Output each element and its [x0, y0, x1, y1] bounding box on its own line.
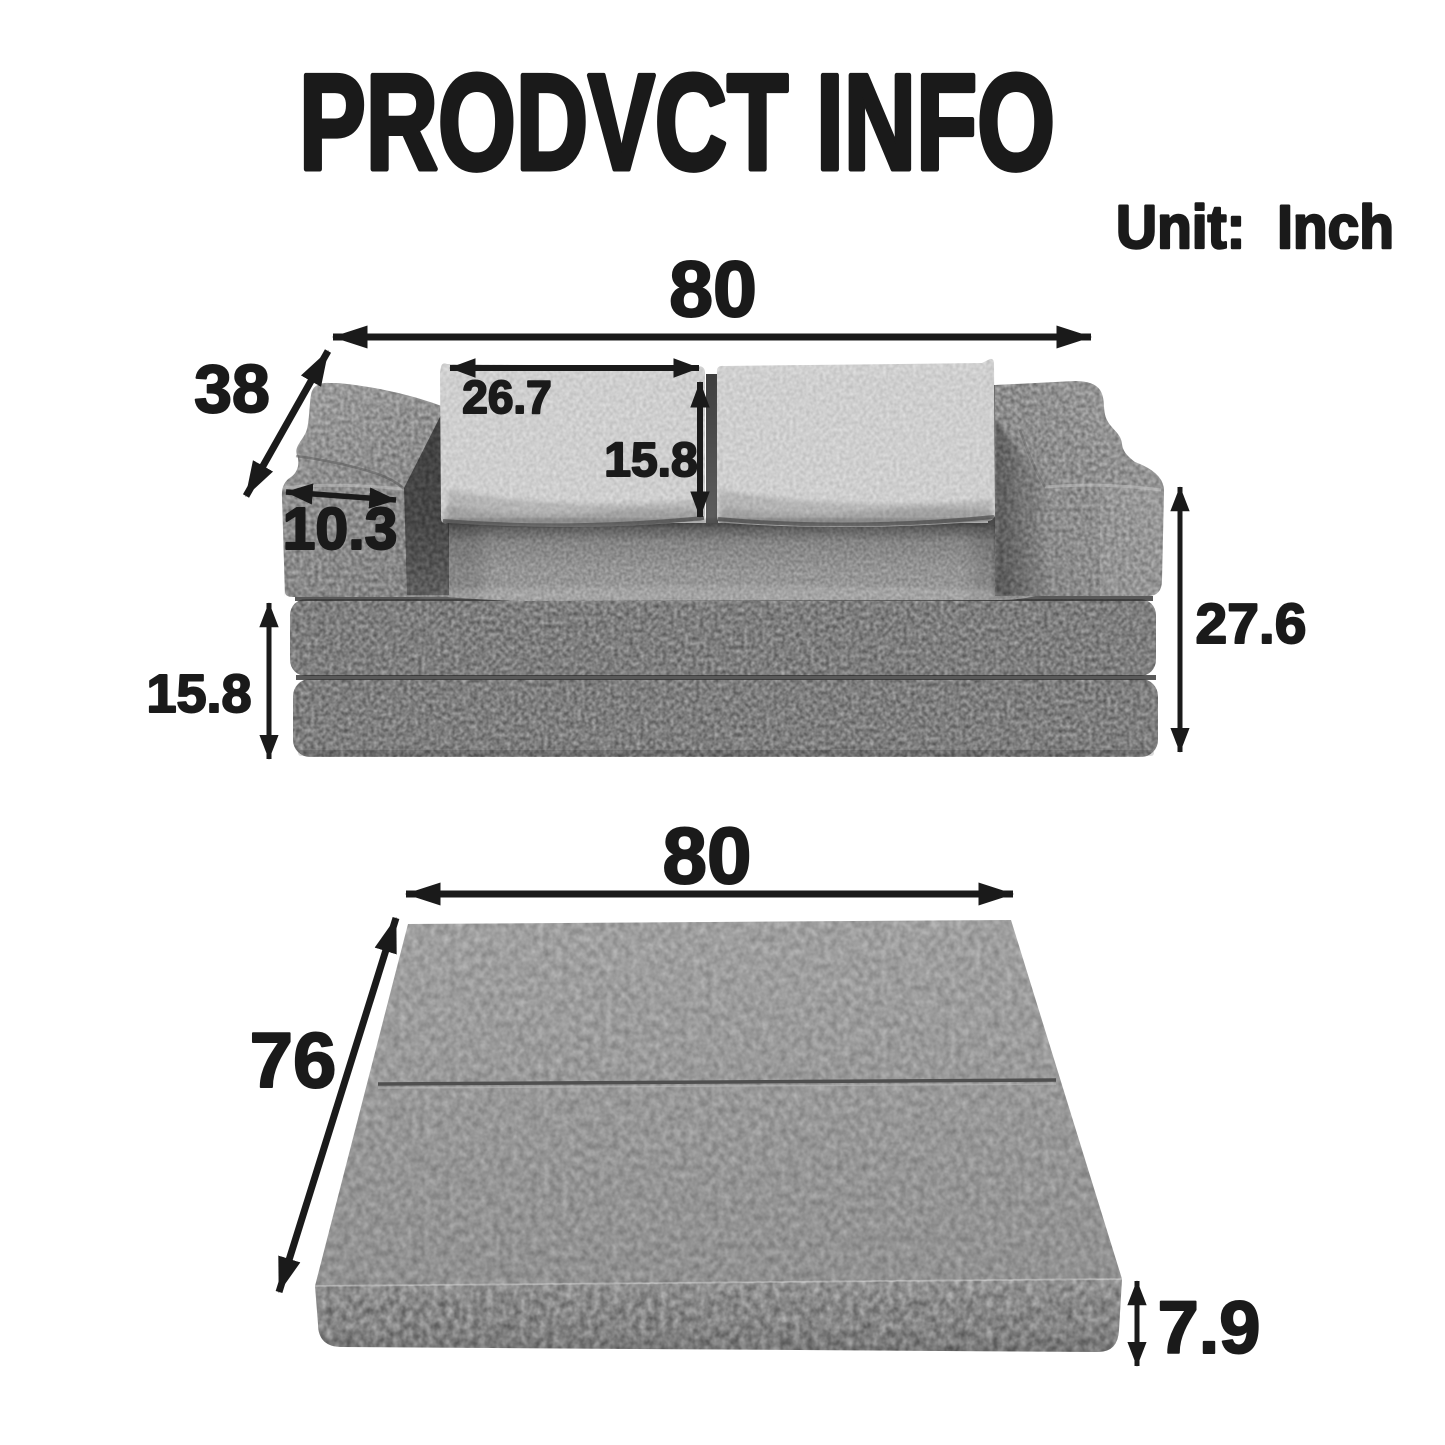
svg-text:PRODVCT INFO: PRODVCT INFO: [299, 46, 1055, 198]
svg-text:80: 80: [669, 244, 757, 333]
svg-text:26.7: 26.7: [462, 371, 552, 423]
svg-text:15.8: 15.8: [146, 664, 251, 724]
svg-text:80: 80: [663, 811, 752, 900]
svg-text:Unit: Inch: Unit: Inch: [1116, 193, 1394, 261]
svg-text:38: 38: [194, 351, 270, 427]
svg-text:10.3: 10.3: [283, 496, 398, 562]
svg-text:76: 76: [250, 1016, 337, 1104]
svg-text:15.8: 15.8: [604, 434, 697, 487]
svg-text:7.9: 7.9: [1158, 1286, 1261, 1369]
svg-text:27.6: 27.6: [1196, 592, 1307, 656]
